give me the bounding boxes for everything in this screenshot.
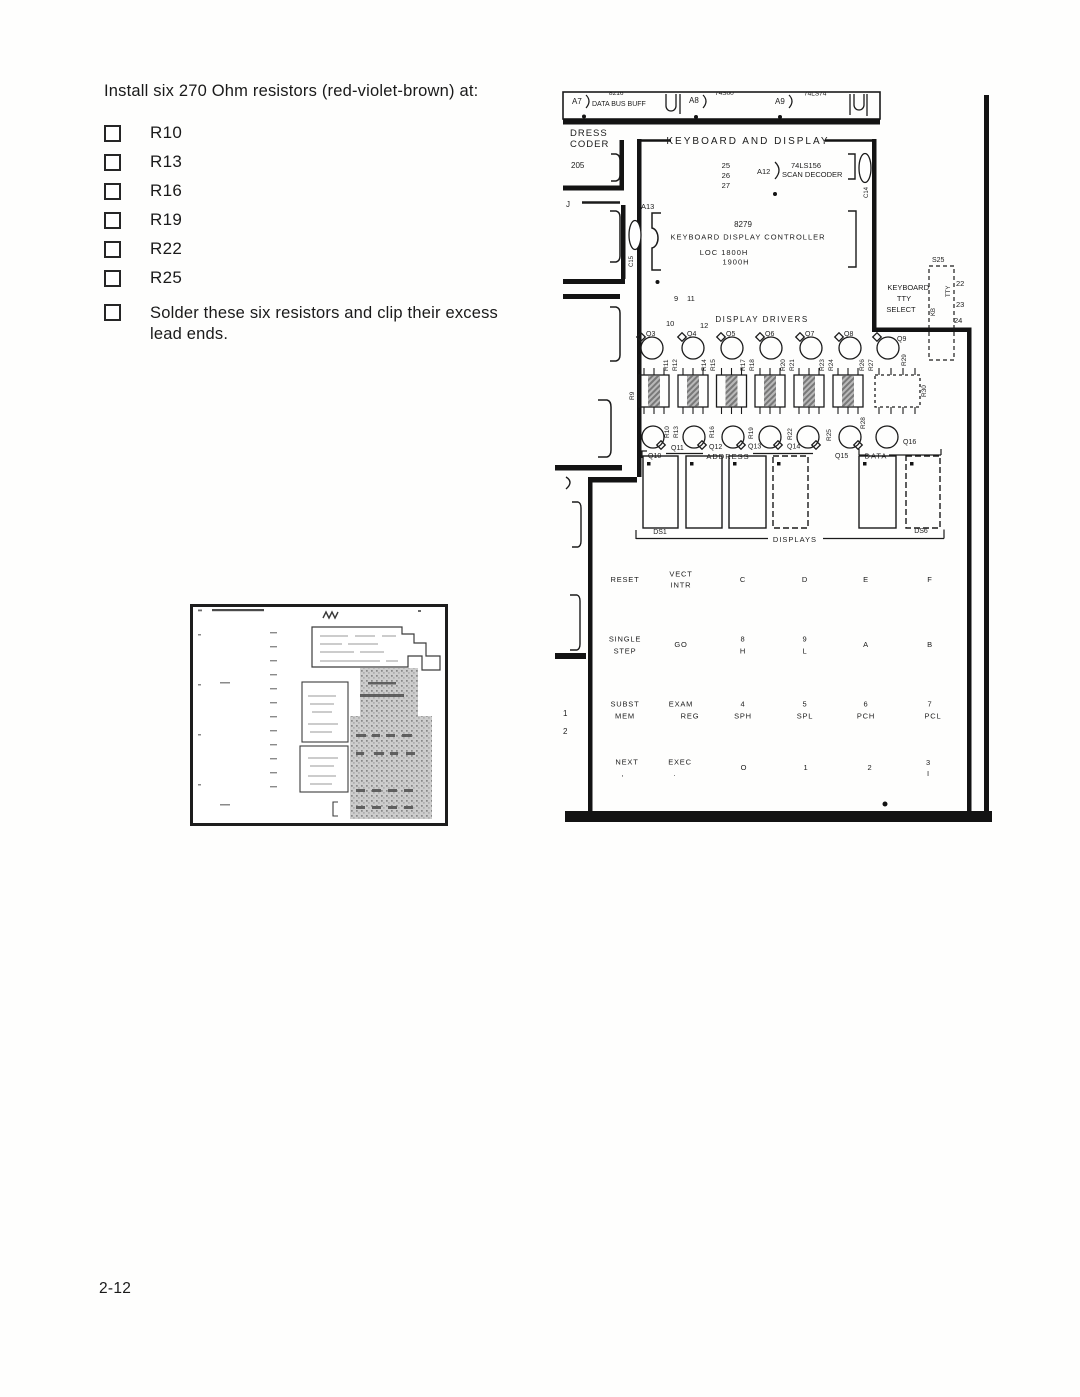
ic-bracket: [610, 211, 620, 262]
r20-label: R20: [780, 359, 787, 371]
q4-label: Q4: [687, 331, 696, 338]
chip-label-a8: 74S00: [715, 90, 734, 97]
controller-name: KEYBOARD DISPLAY CONTROLLER: [670, 233, 825, 242]
pin1-dot: [773, 192, 777, 196]
ic-bracket: [572, 502, 581, 547]
box-right-upper: [872, 139, 877, 328]
q13-label: Q13: [748, 444, 761, 451]
pin1-dot: [778, 115, 782, 119]
r28-label: R28: [860, 417, 867, 429]
r19-label: R19: [748, 427, 755, 439]
resistor-pack-r30: [875, 375, 920, 407]
ref-a8: A8: [689, 96, 699, 105]
thumb-left-block: [300, 746, 348, 792]
display-dots: [647, 462, 914, 466]
board-locator-thumbnail: [190, 604, 448, 826]
display-dashed: [773, 456, 808, 528]
cap-label-c15: C15: [629, 255, 635, 267]
ic-outline-marks: [850, 94, 867, 116]
pin-23: 23: [956, 300, 964, 309]
dip-notch-arc: [775, 162, 779, 179]
ic-bracket: [848, 154, 855, 179]
q14-label: Q14: [787, 444, 800, 451]
key-a: A: [863, 640, 869, 649]
key-9: 9: [803, 635, 808, 644]
pin-9: 9: [674, 294, 678, 303]
key-0: O: [741, 763, 748, 772]
dip-notch-arc: [566, 477, 570, 489]
section-line: [621, 205, 626, 279]
key-vect-sub: INTR: [671, 581, 692, 590]
checklist-item-label: R16: [150, 182, 182, 199]
checklist-item-label: R10: [150, 124, 182, 141]
ic-bracket: [598, 400, 611, 457]
key-5-sub: SPL: [797, 712, 814, 721]
key-vect: VECT: [669, 570, 692, 579]
key-f: F: [927, 575, 932, 584]
key-c: C: [740, 575, 746, 584]
chip-8279: 8279: [734, 220, 752, 229]
key-exec: EXEC: [668, 758, 692, 767]
controller-loc1: LOC 1800H: [700, 248, 749, 257]
r23-label: R23: [819, 359, 826, 371]
key-7-sub: PCL: [925, 712, 942, 721]
r14-label: R14: [701, 359, 708, 371]
key-4-sub: SPH: [734, 712, 752, 721]
q9-label: Q9: [897, 336, 906, 343]
diagram-right-border: [984, 95, 989, 822]
decoder-label-line2: CODER: [570, 139, 609, 150]
key-4: 4: [741, 700, 746, 709]
key-6: 6: [864, 700, 869, 709]
checklist-item: R25: [104, 269, 182, 287]
thumb-mark: [418, 610, 421, 612]
r16-label: R16: [709, 426, 716, 438]
checklist-item: R13: [104, 153, 182, 171]
side-pin-1: 1: [563, 709, 568, 718]
checkbox: [104, 304, 121, 321]
key-9-sub: L: [803, 647, 808, 656]
tty-label-2: TTY: [897, 294, 911, 303]
q16-label: Q16: [903, 439, 916, 446]
key-6-sub: PCH: [857, 712, 875, 721]
thumb-mark: [198, 610, 202, 612]
display-drivers-title: DISPLAY DRIVERS: [715, 315, 808, 324]
pin1-dot: [694, 115, 698, 119]
r30-label: R30: [921, 385, 928, 397]
capacitor-c15: [629, 221, 641, 250]
key-d: D: [802, 575, 808, 584]
connector-j: J: [566, 200, 570, 209]
key-8-sub: H: [740, 647, 746, 656]
key-next: NEXT: [615, 758, 638, 767]
r10-label: R10: [664, 426, 671, 438]
checklist-item-label: R22: [150, 240, 182, 257]
ds6-label: DS6: [914, 528, 928, 535]
dip-notch-arc: [789, 95, 792, 108]
pin-10: 10: [666, 319, 674, 328]
left-edge-marks: 1 2: [555, 477, 586, 736]
page-number: 2-12: [99, 1280, 131, 1298]
display-dashed: [906, 456, 940, 528]
board-dot: [883, 802, 888, 807]
section-line: [563, 294, 620, 299]
chip-label-a7: 8216: [609, 90, 624, 97]
key-b: B: [927, 640, 933, 649]
section-line: [563, 279, 625, 284]
resistor-labels-bottom: R10 R13 R16 R19 R22 R25 R28: [664, 417, 867, 441]
ic-bracket: [570, 595, 580, 650]
r29-label: R29: [901, 354, 908, 366]
checklist-item: R19: [104, 211, 182, 229]
board-diagram: 8216 74S00 74LS74 A7 DATA BUS BUFF A8 A9…: [553, 78, 998, 833]
pin-25: 25: [722, 161, 730, 170]
checklist-item-label: R13: [150, 153, 182, 170]
tty-label-3: SELECT: [886, 305, 916, 314]
dip-notch-arc: [586, 95, 589, 108]
ic-outline-marks: [666, 94, 680, 114]
solder-instruction: Solder these six resistors and clip thei…: [150, 303, 550, 344]
scan-decoder-label: SCAN DECODER: [782, 170, 843, 179]
pin-26: 26: [722, 171, 730, 180]
decoder-label-line1: DRESS: [570, 128, 608, 139]
key-e: E: [863, 575, 869, 584]
pin-12: 12: [700, 321, 708, 330]
key-5: 5: [803, 700, 808, 709]
box-left-upper: [637, 139, 642, 477]
checklist-item-label: R25: [150, 269, 182, 286]
pin1-dot: [656, 280, 660, 284]
key-1: 1: [804, 763, 809, 772]
r18-label: R18: [749, 359, 756, 371]
checkbox: [104, 154, 121, 171]
diagram-bottom-border: [565, 811, 992, 822]
q7-label: Q7: [805, 331, 814, 338]
thumb-highlight-upper: [360, 668, 418, 716]
pin-11: 11: [687, 294, 695, 303]
section-line: [620, 140, 625, 186]
q8-label: Q8: [844, 331, 853, 338]
key-8: 8: [741, 635, 746, 644]
tty-label-1: KEYBOARD: [887, 283, 929, 292]
kb-pin-label: KB: [931, 308, 937, 316]
q3-label: Q3: [646, 331, 655, 338]
key-next-sub: ,: [622, 769, 625, 778]
strip-divider-bar: [563, 119, 880, 125]
box-left-step: [588, 477, 637, 483]
ic-bracket: [848, 211, 856, 267]
ds1-label: DS1: [653, 529, 667, 536]
r24-label: R24: [828, 359, 835, 371]
key-single-sub: STEP: [614, 647, 637, 656]
key-exam-sub: REG: [681, 712, 700, 721]
ic-bracket: [611, 154, 620, 181]
checklist-item-solder: Solder these six resistors and clip thei…: [104, 303, 550, 344]
q11-label: Q11: [671, 445, 684, 452]
tty-pin-label: TTY: [946, 286, 952, 297]
chip-74ls156: 74LS156: [791, 161, 821, 170]
key-3: 3: [926, 758, 931, 767]
thumb-highlight-lower: [350, 716, 432, 819]
ref-a12: A12: [757, 167, 770, 176]
pin-24: 24: [954, 316, 962, 325]
key-exec-sub: .: [674, 769, 677, 778]
q12-label: Q12: [709, 444, 722, 451]
key-subst-sub: MEM: [615, 712, 635, 721]
key-exam: EXAM: [669, 700, 693, 709]
r25-label: R25: [826, 429, 833, 441]
key-single: SINGLE: [609, 635, 641, 644]
r22-label: R22: [787, 428, 794, 440]
ref-a7: A7: [572, 97, 582, 106]
seven-segment-displays: [643, 456, 940, 528]
checkbox: [104, 241, 121, 258]
checkbox: [104, 212, 121, 229]
resistor-packs: [639, 368, 920, 414]
section-line: [563, 186, 624, 191]
pin-22: 22: [956, 279, 964, 288]
chip-label-a9: 74LS74: [804, 91, 827, 98]
cap-label-c14: C14: [864, 186, 870, 198]
solder-line1: Solder these six resistors and clip thei…: [150, 304, 498, 322]
controller-8279: A13 C15 8279 KEYBOARD DISPLAY CONTROLLER…: [629, 202, 856, 330]
ic-bracket: [610, 307, 620, 361]
r9-label: R9: [629, 391, 636, 400]
ic-bracket-notched: [652, 213, 661, 270]
box-right-lower: [967, 328, 972, 812]
section-title: KEYBOARD AND DISPLAY: [666, 136, 829, 147]
manual-page: { "page": { "number": "2-12" }, "instruc…: [0, 0, 1080, 1397]
side-pin-2: 2: [563, 727, 568, 736]
ref-a9: A9: [775, 97, 785, 106]
r26-label: R26: [859, 359, 866, 371]
r12-label: R12: [672, 359, 679, 371]
section-line: [555, 465, 622, 471]
checkbox: [104, 270, 121, 287]
label-data-bus-buff: DATA BUS BUFF: [592, 101, 646, 108]
displays-group-label: DISPLAYS: [773, 535, 817, 544]
capacitor-c14: [859, 154, 871, 183]
solder-line2: lead ends.: [150, 325, 228, 343]
r21-label: R21: [789, 359, 796, 371]
controller-loc2: 1900H: [722, 258, 749, 267]
keypad: RESET VECT INTR C D E F SINGLE STEP GO 8…: [609, 570, 942, 807]
q6-label: Q6: [765, 331, 774, 338]
ref-a13: A13: [641, 202, 654, 211]
checkbox: [104, 183, 121, 200]
r27-label: R27: [868, 359, 875, 371]
key-7: 7: [928, 700, 933, 709]
q15-label: Q15: [835, 453, 848, 460]
key-3-sub: I: [927, 769, 930, 778]
jumper-s25: S25: [932, 257, 945, 264]
key-reset: RESET: [610, 575, 639, 584]
thumb-title-mark: [212, 609, 264, 611]
checklist-item: R16: [104, 182, 182, 200]
chip-label-205: 205: [571, 161, 585, 170]
instruction-intro: Install six 270 Ohm resistors (red-viole…: [104, 82, 584, 101]
checklist-item: R22: [104, 240, 182, 258]
checkbox: [104, 125, 121, 142]
section-line: [555, 653, 586, 659]
checklist-item: R10: [104, 124, 182, 142]
q5-label: Q5: [726, 331, 735, 338]
pin-27: 27: [722, 181, 730, 190]
box-notch-line: [872, 328, 972, 333]
key-2: 2: [868, 763, 873, 772]
box-left-lower: [588, 477, 593, 811]
key-subst: SUBST: [610, 700, 639, 709]
address-decoder-section: DRESS CODER 205 J: [555, 128, 626, 471]
scan-decoder: 25 26 27 A12 74LS156 SCAN DECODER C14: [722, 154, 871, 199]
key-go: GO: [674, 640, 687, 649]
checklist-item-label: R19: [150, 211, 182, 228]
pin1-dot: [582, 115, 586, 119]
r13-label: R13: [673, 426, 680, 438]
dip-notch-arc: [703, 95, 706, 108]
r15-label: R15: [710, 359, 717, 371]
